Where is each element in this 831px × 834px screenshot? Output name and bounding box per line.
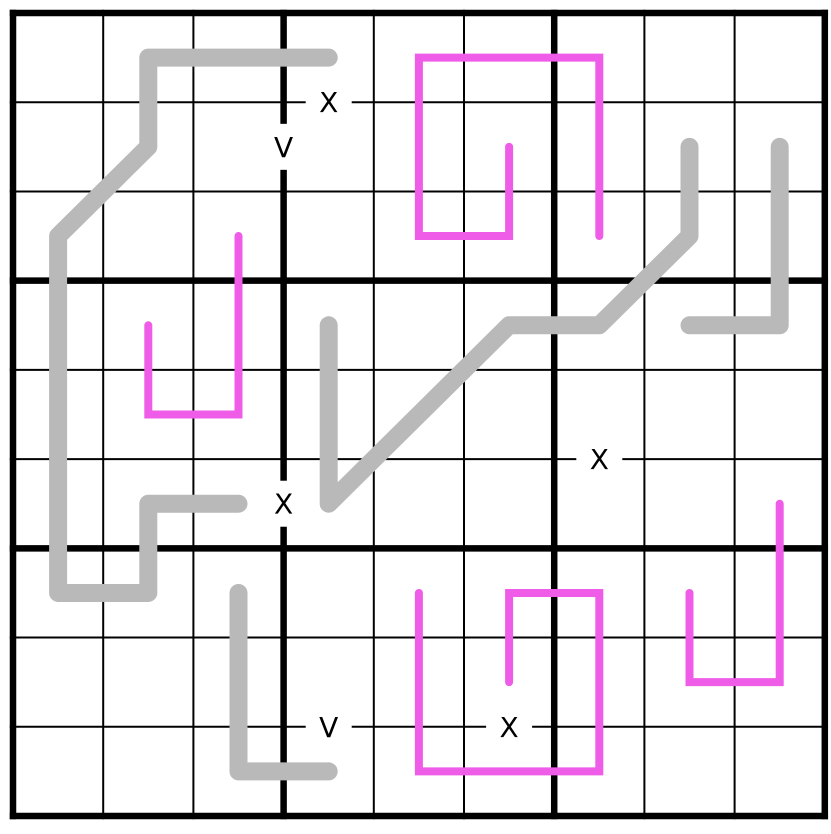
cell-r0c4[interactable] (374, 13, 464, 102)
cell-r7c3[interactable] (284, 638, 374, 727)
cell-r8c4[interactable] (374, 727, 464, 816)
cell-r1c6[interactable] (554, 102, 644, 191)
cell-r0c6[interactable] (554, 13, 644, 102)
cell-r4c0[interactable] (13, 370, 103, 459)
cell-r8c0[interactable] (13, 727, 103, 816)
cell-r8c2[interactable] (193, 727, 283, 816)
puzzle-grid: XVXXVX (0, 0, 831, 829)
cell-r5c6[interactable] (554, 459, 644, 548)
cell-r1c4[interactable] (374, 102, 464, 191)
cell-r2c6[interactable] (554, 191, 644, 280)
cell-r4c4[interactable] (374, 370, 464, 459)
cell-r8c8[interactable] (735, 727, 825, 816)
cell-r6c8[interactable] (735, 548, 825, 637)
cell-r1c3[interactable] (284, 102, 374, 191)
cell-r6c0[interactable] (13, 548, 103, 637)
cell-r4c7[interactable] (644, 370, 734, 459)
cell-r3c0[interactable] (13, 281, 103, 370)
cell-r2c8[interactable] (735, 191, 825, 280)
cell-r3c6[interactable] (554, 281, 644, 370)
cell-r3c8[interactable] (735, 281, 825, 370)
cell-r2c1[interactable] (103, 191, 193, 280)
cell-r6c2[interactable] (193, 548, 283, 637)
cell-r0c2[interactable] (193, 13, 283, 102)
cell-r1c0[interactable] (13, 102, 103, 191)
cell-r2c0[interactable] (13, 191, 103, 280)
cell-r7c6[interactable] (554, 638, 644, 727)
cell-r4c8[interactable] (735, 370, 825, 459)
cell-r3c7[interactable] (644, 281, 734, 370)
cell-r5c0[interactable] (13, 459, 103, 548)
cell-r6c1[interactable] (103, 548, 193, 637)
cell-r3c2[interactable] (193, 281, 283, 370)
cell-r1c5[interactable] (464, 102, 554, 191)
cell-r4c1[interactable] (103, 370, 193, 459)
cell-r0c7[interactable] (644, 13, 734, 102)
cell-r7c1[interactable] (103, 638, 193, 727)
cell-r6c5[interactable] (464, 548, 554, 637)
cell-r6c4[interactable] (374, 548, 464, 637)
cell-r6c6[interactable] (554, 548, 644, 637)
cell-r4c5[interactable] (464, 370, 554, 459)
cell-r6c3[interactable] (284, 548, 374, 637)
cell-r8c1[interactable] (103, 727, 193, 816)
cell-r2c7[interactable] (644, 191, 734, 280)
cell-r5c7[interactable] (644, 459, 734, 548)
cell-r7c8[interactable] (735, 638, 825, 727)
cell-r5c8[interactable] (735, 459, 825, 548)
cell-r3c5[interactable] (464, 281, 554, 370)
cell-r5c1[interactable] (103, 459, 193, 548)
cell-r0c8[interactable] (735, 13, 825, 102)
cell-r2c4[interactable] (374, 191, 464, 280)
cell-r5c5[interactable] (464, 459, 554, 548)
cell-r3c1[interactable] (103, 281, 193, 370)
cell-r1c1[interactable] (103, 102, 193, 191)
cell-r0c1[interactable] (103, 13, 193, 102)
cell-r2c5[interactable] (464, 191, 554, 280)
cell-r8c7[interactable] (644, 727, 734, 816)
cell-r0c3[interactable] (284, 13, 374, 102)
cell-r4c6[interactable] (554, 370, 644, 459)
cell-r8c3[interactable] (284, 727, 374, 816)
cell-r4c2[interactable] (193, 370, 283, 459)
cell-r5c2[interactable] (193, 459, 283, 548)
cell-r2c2[interactable] (193, 191, 283, 280)
cell-r1c8[interactable] (735, 102, 825, 191)
cell-r7c2[interactable] (193, 638, 283, 727)
cell-r3c4[interactable] (374, 281, 464, 370)
cell-r1c7[interactable] (644, 102, 734, 191)
cell-r2c3[interactable] (284, 191, 374, 280)
cell-r7c0[interactable] (13, 638, 103, 727)
cell-r3c3[interactable] (284, 281, 374, 370)
cell-r8c5[interactable] (464, 727, 554, 816)
cell-r0c0[interactable] (13, 13, 103, 102)
cell-r8c6[interactable] (554, 727, 644, 816)
puzzle-board: XVXXVX (0, 0, 831, 829)
cell-r7c4[interactable] (374, 638, 464, 727)
cell-r6c7[interactable] (644, 548, 734, 637)
cell-r0c5[interactable] (464, 13, 554, 102)
cells (13, 13, 825, 816)
cell-r7c5[interactable] (464, 638, 554, 727)
cell-r4c3[interactable] (284, 370, 374, 459)
cell-r5c4[interactable] (374, 459, 464, 548)
cell-r7c7[interactable] (644, 638, 734, 727)
cell-r1c2[interactable] (193, 102, 283, 191)
cell-r5c3[interactable] (284, 459, 374, 548)
